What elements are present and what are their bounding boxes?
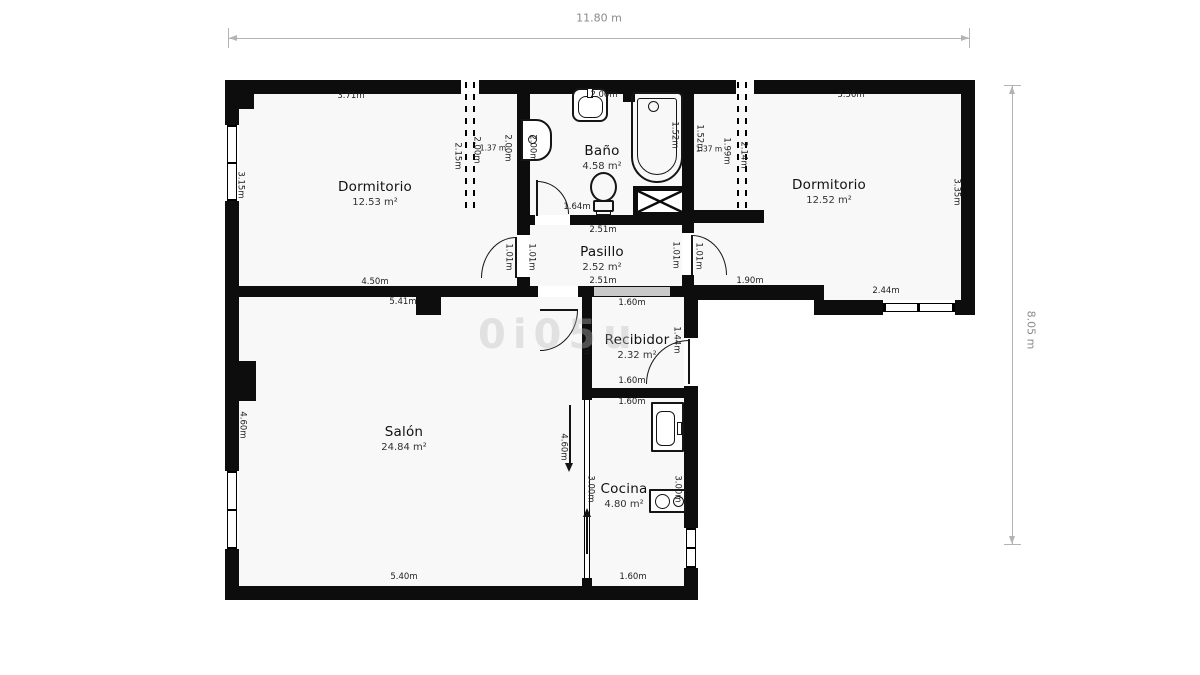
- wall-corridor-bottom: [684, 285, 824, 300]
- wall-exterior-right-upper: [961, 80, 975, 315]
- gap-door-bano: [535, 215, 570, 225]
- bathroom-sink: [572, 88, 608, 122]
- floor-plan-canvas: 11.80 m8.05 m3.71m3.15m4.50m2.15m2.00m1.…: [0, 0, 1200, 675]
- right-dimension-tick-bottom: [1004, 544, 1021, 545]
- wall-partition-cap: [582, 578, 592, 588]
- ventilation-shaft: [633, 186, 687, 217]
- wall-exterior-bottom: [225, 586, 698, 600]
- closet-dashed-line-left-b: [473, 82, 475, 214]
- top-dimension-line: [229, 38, 969, 39]
- wall-corner-column-topleft: [239, 94, 254, 109]
- top-dimension-arrow-right: [961, 35, 969, 41]
- wall-recibidor-cocina-divider: [592, 388, 684, 398]
- gap-top-wall-closet-left: [461, 80, 479, 94]
- toilet-base: [596, 211, 611, 215]
- right-dimension-arrow-down: [1009, 536, 1015, 544]
- cooktop: [649, 489, 686, 513]
- window-salon: [227, 471, 237, 549]
- wall-closet-stub-right: [682, 210, 764, 223]
- shaft-cross-icon: [638, 191, 682, 212]
- open-passage-pasillo-recibidor: [594, 287, 670, 296]
- wall-salon-top-column: [416, 297, 441, 315]
- kitchen-sink: [651, 402, 684, 452]
- bidet: [521, 119, 552, 161]
- window-dormitorio-left: [227, 125, 237, 201]
- right-dimension-line: [1012, 86, 1013, 544]
- salon-height-arrow-line: [569, 405, 571, 465]
- closet-dashed-line-right-b: [745, 82, 747, 210]
- window-cocina: [686, 528, 696, 568]
- cocina-height-arrow-line: [586, 516, 588, 554]
- gap-door-salon: [538, 286, 578, 297]
- closet-dashed-line-right-a: [737, 82, 739, 210]
- top-dimension-tick-right: [969, 28, 970, 48]
- wall-salon-left-column: [239, 361, 256, 401]
- closet-dashed-line-left-a: [465, 82, 467, 214]
- window-dormitorio-right: [883, 303, 955, 312]
- top-dimension-arrow-left: [229, 35, 237, 41]
- bathtub: [631, 92, 683, 183]
- floor-bedroom-extension: [824, 286, 961, 300]
- cocina-height-arrow-head: [583, 508, 591, 517]
- right-dimension-arrow-up: [1009, 86, 1015, 94]
- gap-door-dormitorio-left: [517, 235, 530, 277]
- dimension-label: 8.05 m: [1026, 311, 1037, 350]
- salon-height-arrow-head: [565, 463, 573, 472]
- toilet-bowl: [590, 172, 617, 202]
- watermark: 0i05u: [478, 312, 639, 358]
- dimension-label: 11.80 m: [576, 13, 622, 24]
